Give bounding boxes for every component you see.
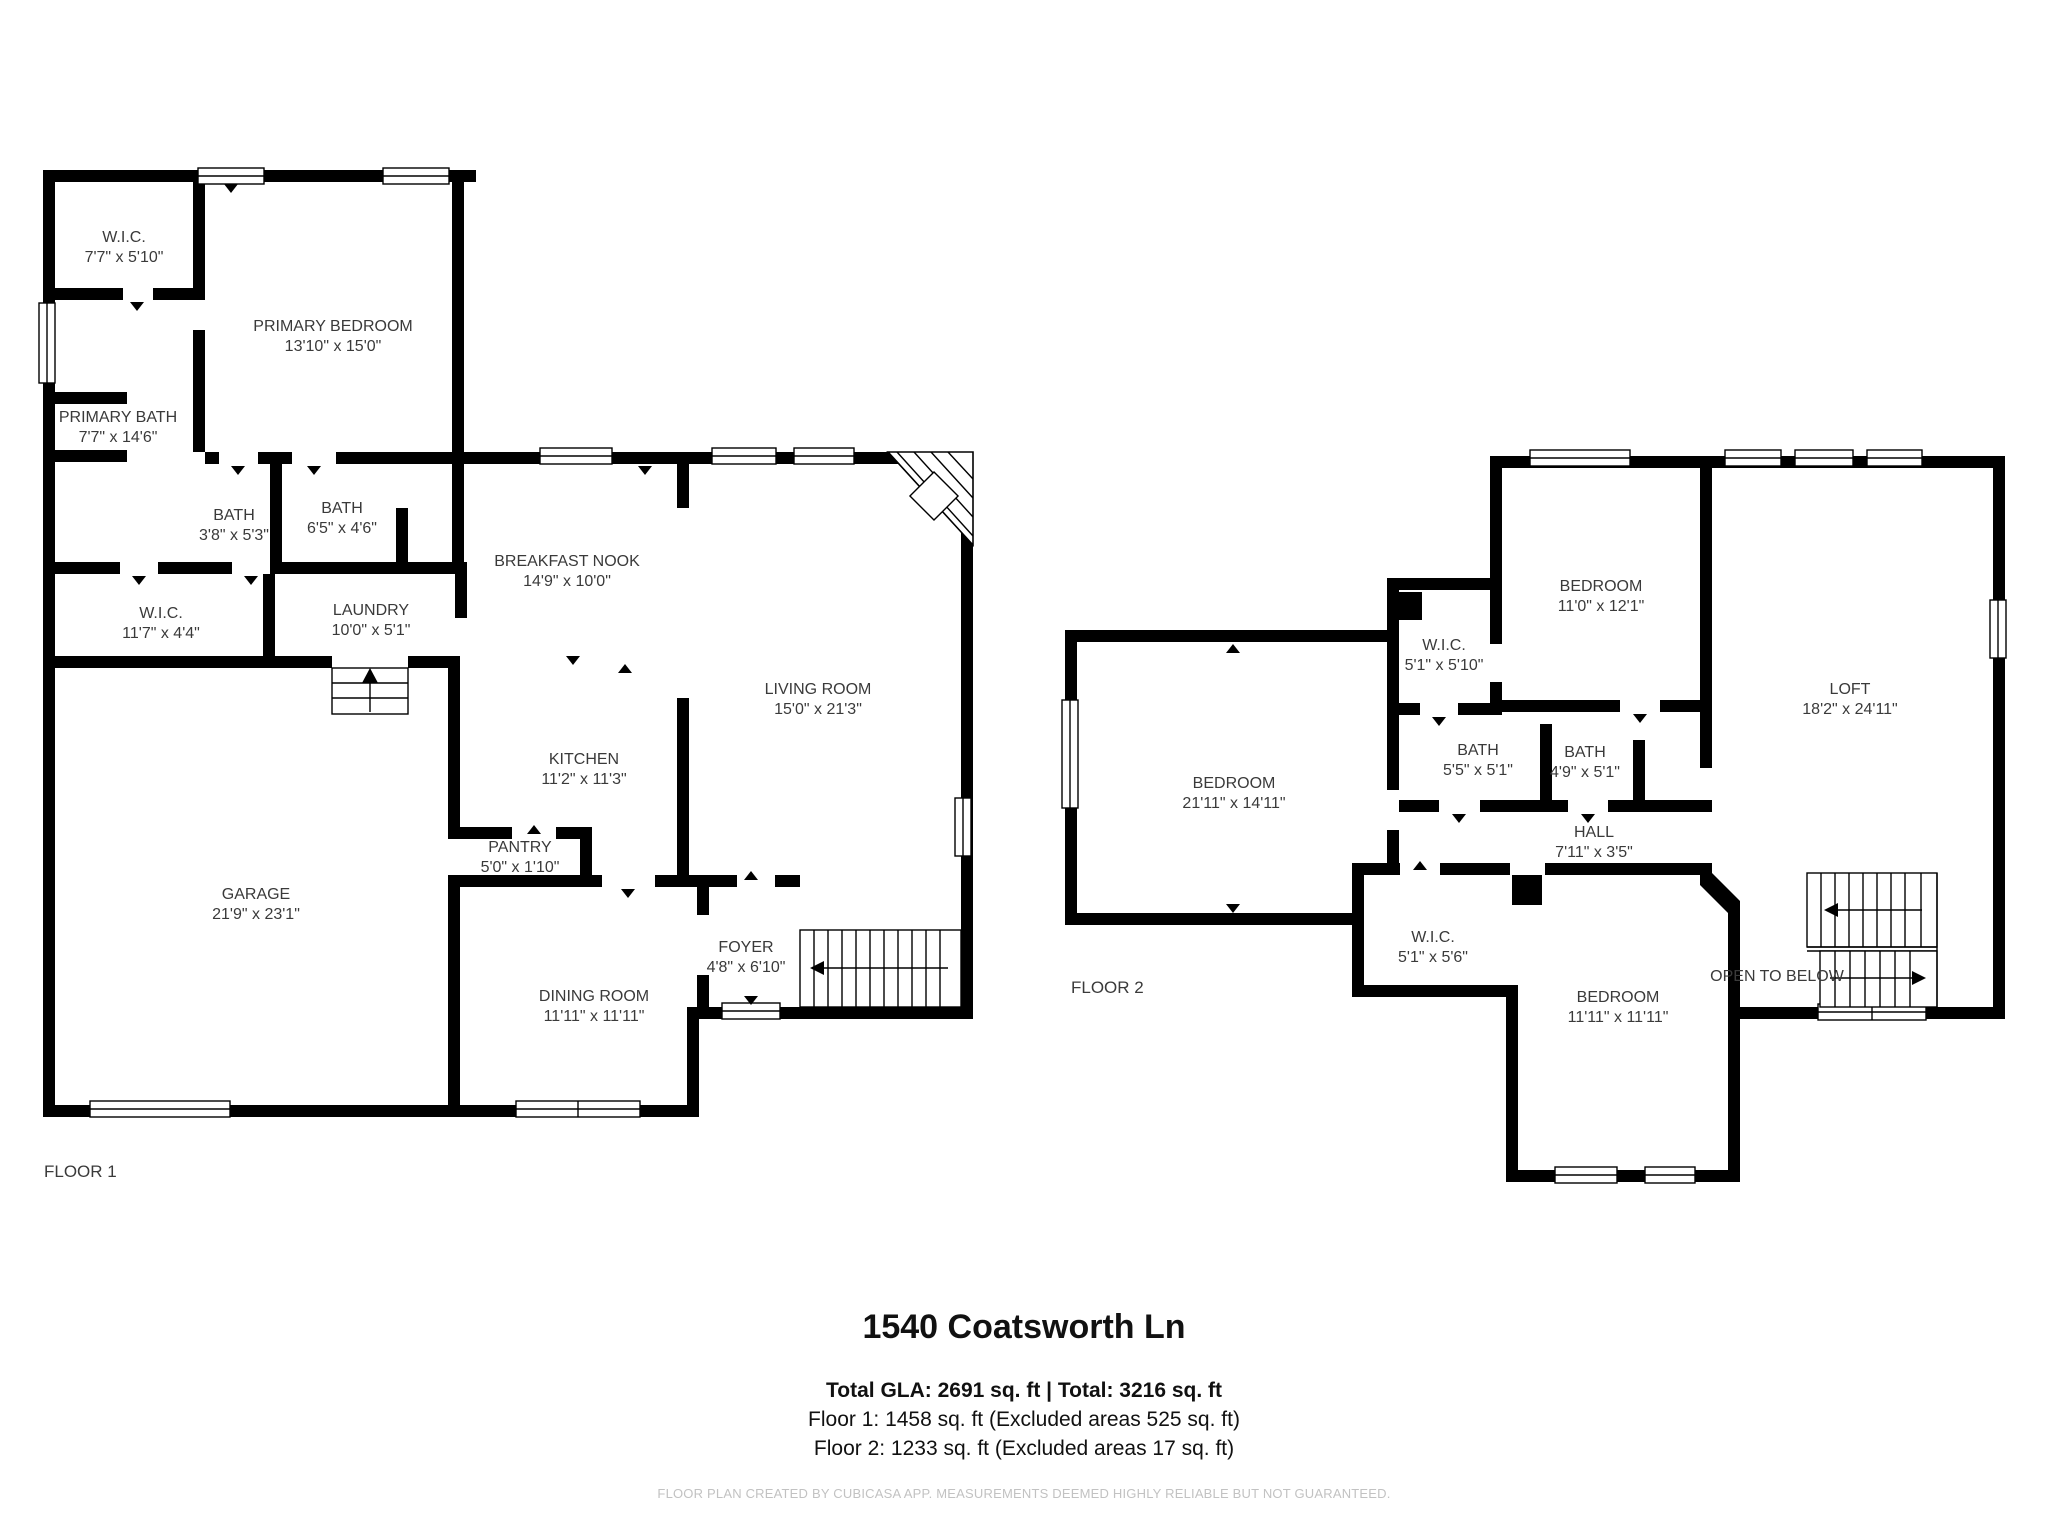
floor-plan-canvas: W.I.C.7'7" x 5'10"PRIMARY BEDROOM13'10" … — [0, 0, 2048, 1536]
room-label: W.I.C.11'7" x 4'4" — [122, 604, 200, 644]
room-label: FOYER4'8" x 6'10" — [707, 938, 786, 978]
room-label: LOFT18'2" x 24'11" — [1802, 680, 1897, 720]
floor1-label: FLOOR 1 — [44, 1162, 117, 1182]
summary-floor2: Floor 2: 1233 sq. ft (Excluded areas 17 … — [0, 1437, 2048, 1461]
room-name: FOYER — [707, 938, 786, 958]
room-dimensions: 13'10" x 15'0" — [253, 337, 412, 357]
room-name: LOFT — [1802, 680, 1897, 700]
room-label: W.I.C.7'7" x 5'10" — [85, 228, 164, 268]
open-to-below-label: OPEN TO BELOW — [1710, 968, 1844, 986]
room-dimensions: 7'7" x 14'6" — [59, 428, 177, 448]
summary-total: Total GLA: 2691 sq. ft | Total: 3216 sq.… — [0, 1379, 2048, 1403]
floor2-walls — [1065, 456, 2005, 1182]
room-dimensions: 3'8" x 5'3" — [199, 526, 269, 546]
room-label: BREAKFAST NOOK14'9" x 10'0" — [494, 552, 640, 592]
room-label: BEDROOM21'11" x 14'11" — [1182, 774, 1285, 814]
room-label: BATH5'5" x 5'1" — [1443, 741, 1513, 781]
room-name: BEDROOM — [1568, 988, 1669, 1008]
room-name: W.I.C. — [1405, 636, 1484, 656]
room-label: LIVING ROOM15'0" x 21'3" — [765, 680, 872, 720]
room-dimensions: 10'0" x 5'1" — [332, 621, 411, 641]
room-name: LIVING ROOM — [765, 680, 872, 700]
room-name: DINING ROOM — [539, 987, 649, 1007]
room-dimensions: 5'1" x 5'10" — [1405, 656, 1484, 676]
room-label: PRIMARY BATH7'7" x 14'6" — [59, 408, 177, 448]
room-label: PRIMARY BEDROOM13'10" x 15'0" — [253, 317, 412, 357]
room-label: BATH3'8" x 5'3" — [199, 506, 269, 546]
stairs-floor2 — [1807, 873, 1937, 1007]
room-dimensions: 11'2" x 11'3" — [541, 770, 626, 790]
room-name: BREAKFAST NOOK — [494, 552, 640, 572]
room-name: W.I.C. — [122, 604, 200, 624]
room-dimensions: 5'0" x 1'10" — [481, 858, 560, 878]
room-dimensions: 11'11" x 11'11" — [1568, 1008, 1669, 1028]
room-name: PANTRY — [481, 838, 560, 858]
room-name: BATH — [307, 499, 377, 519]
room-name: LAUNDRY — [332, 601, 411, 621]
room-name: BEDROOM — [1182, 774, 1285, 794]
floor2-windows — [1062, 450, 2006, 1183]
summary-floor1: Floor 1: 1458 sq. ft (Excluded areas 525… — [0, 1408, 2048, 1432]
room-dimensions: 7'11" x 3'5" — [1555, 843, 1633, 863]
floor2-label: FLOOR 2 — [1071, 978, 1144, 998]
room-dimensions: 18'2" x 24'11" — [1802, 700, 1897, 720]
room-label: GARAGE21'9" x 23'1" — [212, 885, 300, 925]
room-dimensions: 11'11" x 11'11" — [539, 1007, 649, 1027]
room-dimensions: 14'9" x 10'0" — [494, 572, 640, 592]
room-name: KITCHEN — [541, 750, 626, 770]
room-label: BEDROOM11'11" x 11'11" — [1568, 988, 1669, 1028]
room-label: PANTRY5'0" x 1'10" — [481, 838, 560, 878]
room-dimensions: 11'0" x 12'1" — [1558, 597, 1645, 617]
fireplace — [888, 452, 973, 545]
room-name: PRIMARY BATH — [59, 408, 177, 428]
room-name: W.I.C. — [1398, 928, 1468, 948]
stairs-floor1 — [800, 930, 961, 1007]
footer-disclaimer: FLOOR PLAN CREATED BY CUBICASA APP. MEAS… — [0, 1486, 2048, 1501]
room-name: W.I.C. — [85, 228, 164, 248]
room-dimensions: 6'5" x 4'6" — [307, 519, 377, 539]
room-dimensions: 21'9" x 23'1" — [212, 905, 300, 925]
room-name: BATH — [1550, 743, 1620, 763]
room-dimensions: 15'0" x 21'3" — [765, 700, 872, 720]
room-dimensions: 5'1" x 5'6" — [1398, 948, 1468, 968]
floor-plan-drawing — [0, 0, 2048, 1536]
room-dimensions: 4'9" x 5'1" — [1550, 763, 1620, 783]
room-label: HALL7'11" x 3'5" — [1555, 823, 1633, 863]
room-name: GARAGE — [212, 885, 300, 905]
room-name: HALL — [1555, 823, 1633, 843]
room-name: BEDROOM — [1558, 577, 1645, 597]
room-label: BEDROOM11'0" x 12'1" — [1558, 577, 1645, 617]
room-label: DINING ROOM11'11" x 11'11" — [539, 987, 649, 1027]
room-label: BATH6'5" x 4'6" — [307, 499, 377, 539]
room-name: BATH — [199, 506, 269, 526]
room-label: LAUNDRY10'0" x 5'1" — [332, 601, 411, 641]
stairs-garage — [332, 668, 408, 714]
room-dimensions: 4'8" x 6'10" — [707, 958, 786, 978]
room-label: W.I.C.5'1" x 5'6" — [1398, 928, 1468, 968]
room-label: W.I.C.5'1" x 5'10" — [1405, 636, 1484, 676]
page-title: 1540 Coatsworth Ln — [0, 1308, 2048, 1347]
room-label: KITCHEN11'2" x 11'3" — [541, 750, 626, 790]
room-name: BATH — [1443, 741, 1513, 761]
room-dimensions: 21'11" x 14'11" — [1182, 794, 1285, 814]
room-dimensions: 11'7" x 4'4" — [122, 624, 200, 644]
room-label: BATH4'9" x 5'1" — [1550, 743, 1620, 783]
room-dimensions: 5'5" x 5'1" — [1443, 761, 1513, 781]
room-dimensions: 7'7" x 5'10" — [85, 248, 164, 268]
room-name: PRIMARY BEDROOM — [253, 317, 412, 337]
